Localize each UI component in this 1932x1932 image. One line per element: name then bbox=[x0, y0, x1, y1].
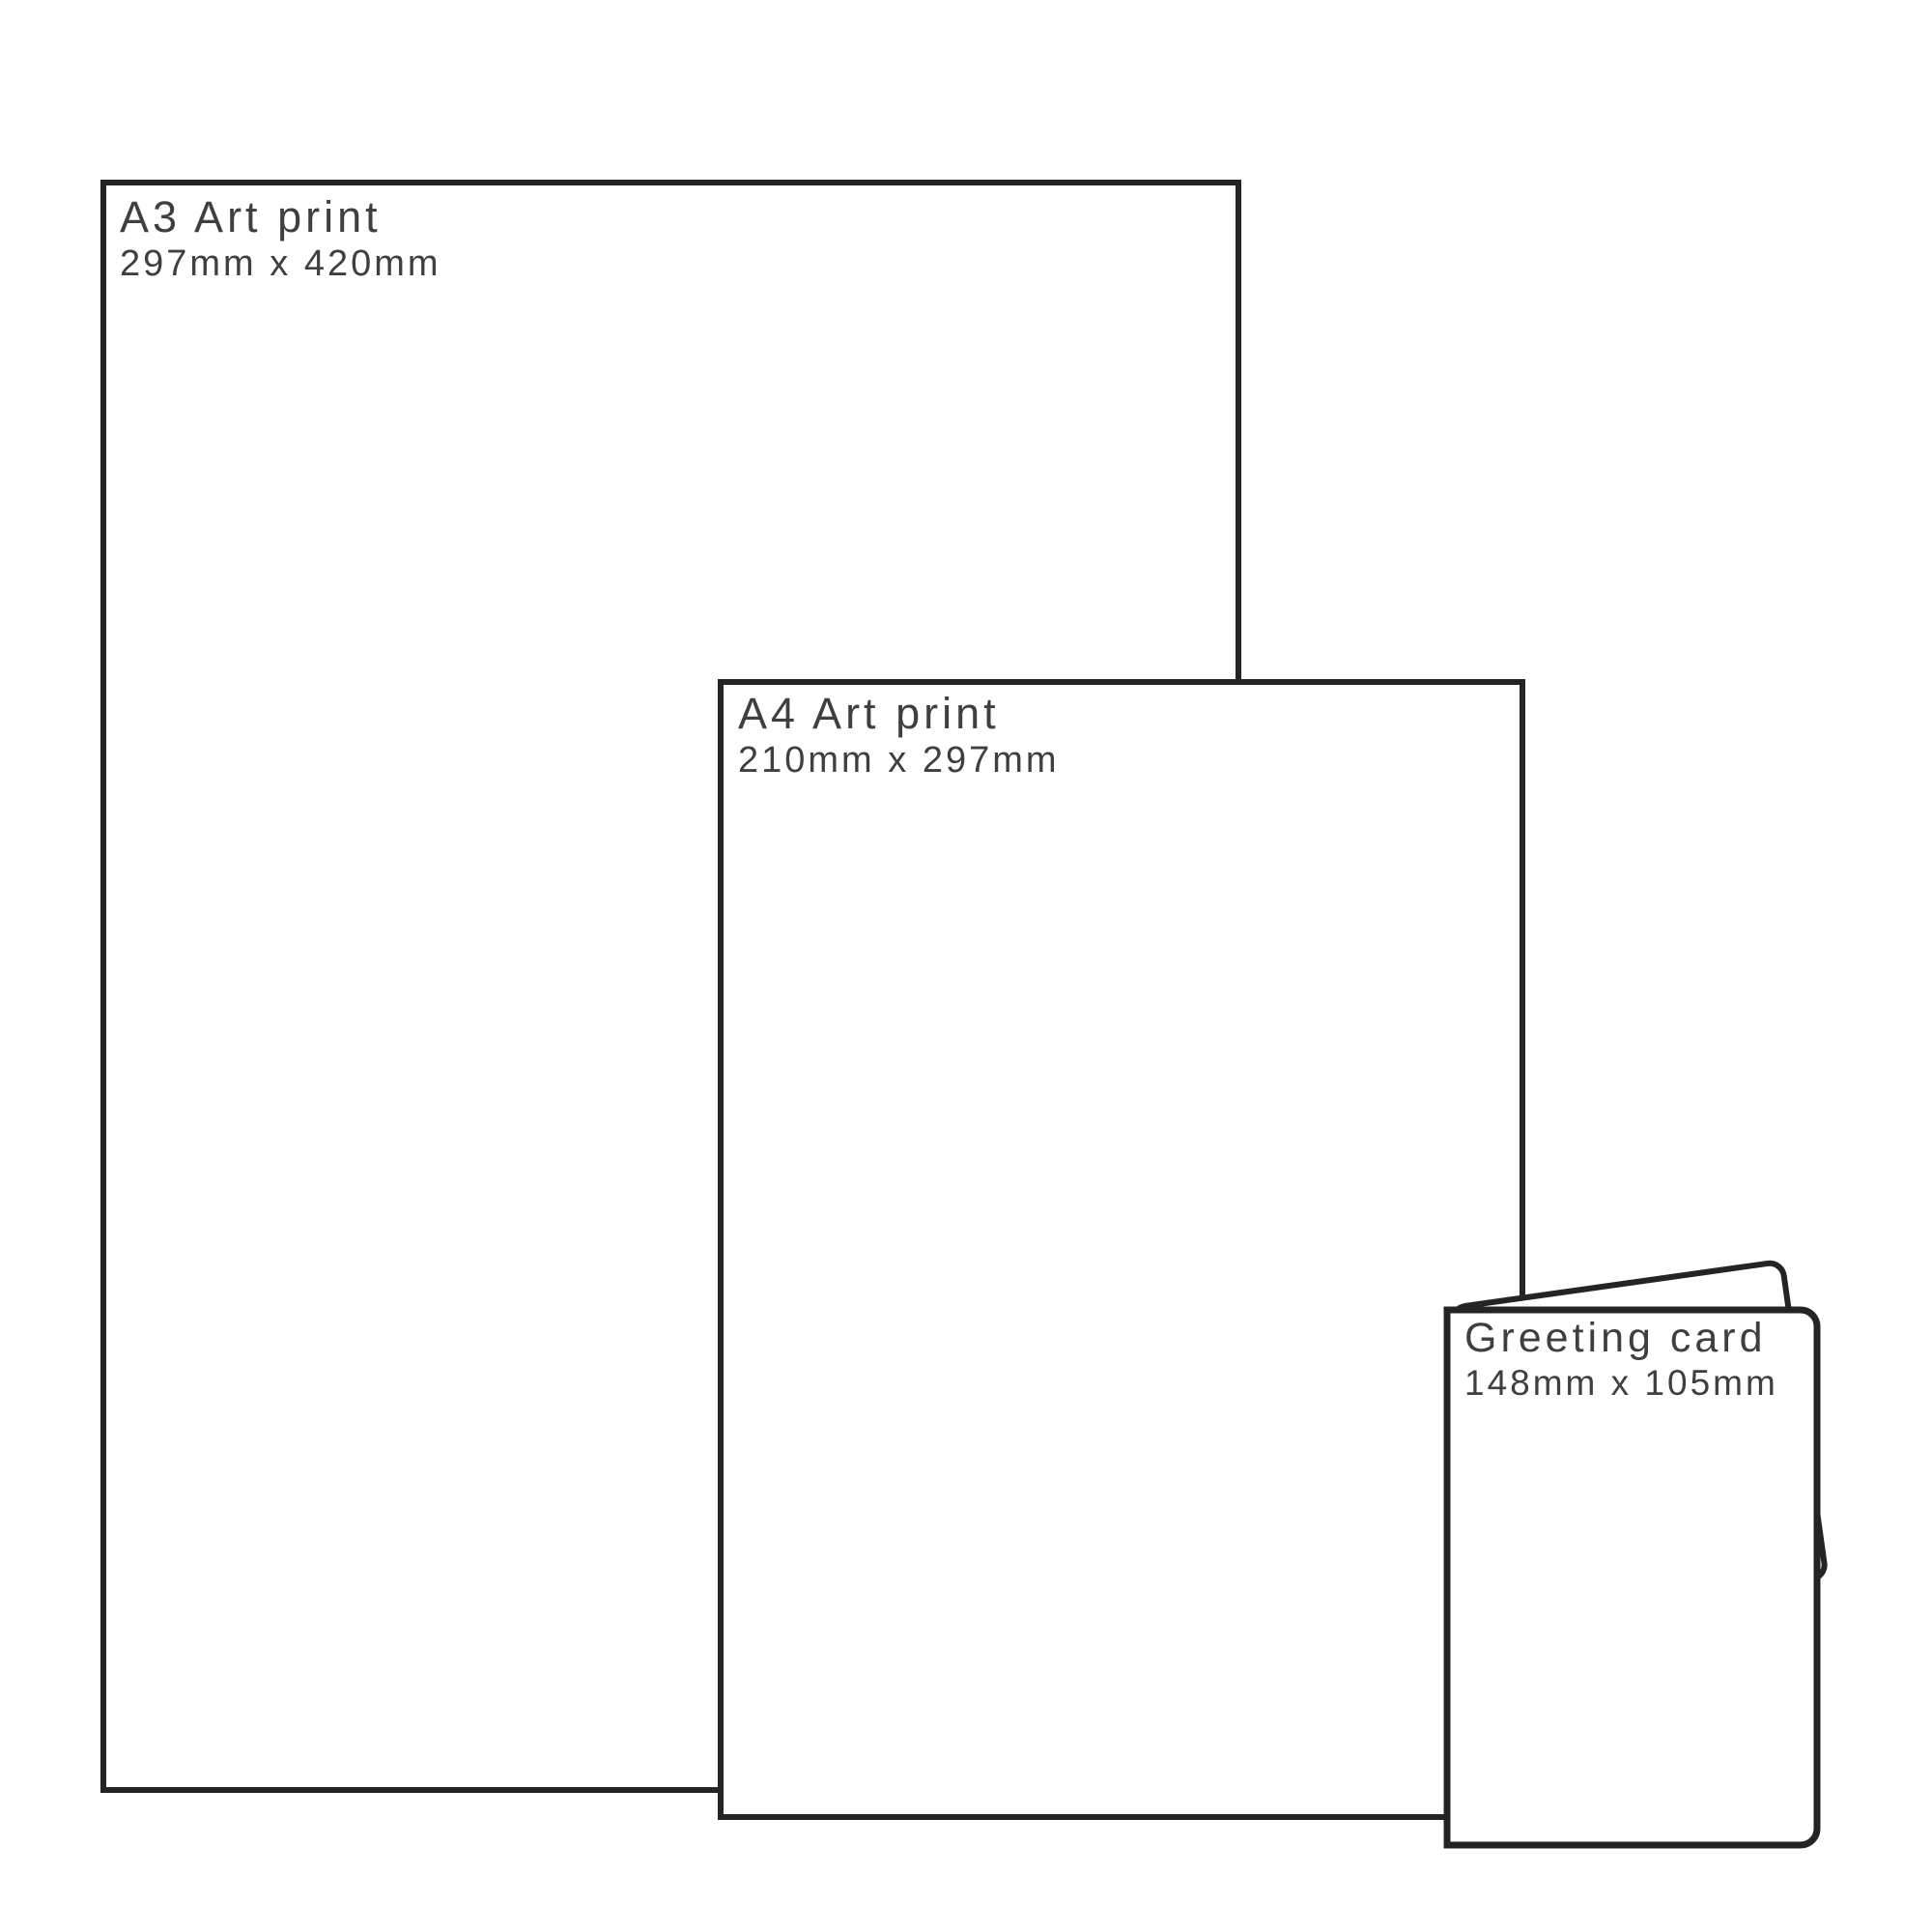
a4-print-dimensions: 210mm x 297mm bbox=[738, 739, 1060, 781]
diagram-shapes bbox=[0, 0, 1932, 1932]
a3-print-dimensions: 297mm x 420mm bbox=[120, 242, 441, 285]
greeting-card-label: Greeting card 148mm x 105mm bbox=[1464, 1314, 1778, 1405]
a3-print-title: A3 Art print bbox=[120, 191, 441, 242]
a3-print-label: A3 Art print 297mm x 420mm bbox=[120, 191, 441, 285]
a4-print-outline bbox=[721, 682, 1522, 1817]
a4-print-title: A4 Art print bbox=[738, 688, 1060, 739]
greeting-card-dimensions: 148mm x 105mm bbox=[1464, 1363, 1778, 1405]
greeting-card-title: Greeting card bbox=[1464, 1314, 1778, 1363]
a4-print-label: A4 Art print 210mm x 297mm bbox=[738, 688, 1060, 781]
size-comparison-diagram: A3 Art print 297mm x 420mm A4 Art print … bbox=[0, 0, 1932, 1932]
